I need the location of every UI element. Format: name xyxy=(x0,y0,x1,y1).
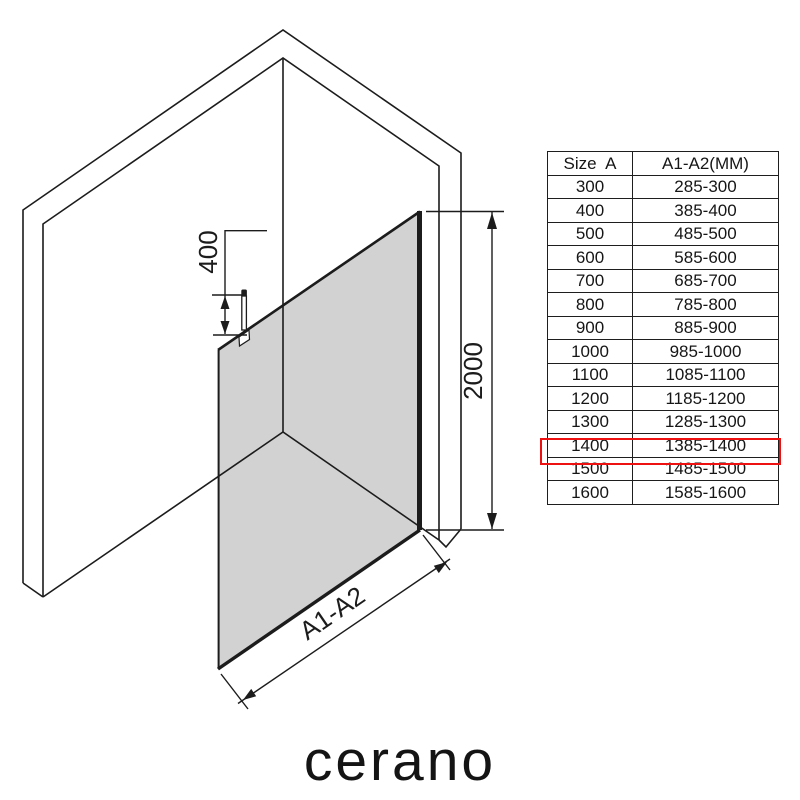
size-cell: 1600 xyxy=(548,481,633,505)
table-row: 16001585-1600 xyxy=(548,481,779,505)
size-cell: 1400 xyxy=(548,434,633,458)
size-table-header-range: A1-A2(MM) xyxy=(633,152,779,176)
table-row: 13001285-1300 xyxy=(548,410,779,434)
range-cell: 485-500 xyxy=(633,222,779,246)
range-cell: 1585-1600 xyxy=(633,481,779,505)
table-row: 900885-900 xyxy=(548,316,779,340)
dimension-support-bar: 400 xyxy=(193,230,267,335)
size-cell: 800 xyxy=(548,293,633,317)
size-cell: 1000 xyxy=(548,340,633,364)
table-row: 1000985-1000 xyxy=(548,340,779,364)
range-cell: 1185-1200 xyxy=(633,387,779,411)
size-cell: 1100 xyxy=(548,363,633,387)
size-table-header-row: Size A A1-A2(MM) xyxy=(548,152,779,176)
table-row: 15001485-1500 xyxy=(548,457,779,481)
size-cell: 300 xyxy=(548,175,633,199)
range-cell: 585-600 xyxy=(633,246,779,270)
range-cell: 1485-1500 xyxy=(633,457,779,481)
table-row: 11001085-1100 xyxy=(548,363,779,387)
table-row: 300285-300 xyxy=(548,175,779,199)
dimension-height: 2000 xyxy=(426,212,504,531)
size-cell: 1200 xyxy=(548,387,633,411)
size-table-header-size: Size A xyxy=(548,152,633,176)
size-cell: 700 xyxy=(548,269,633,293)
range-cell: 385-400 xyxy=(633,199,779,223)
range-cell: 285-300 xyxy=(633,175,779,199)
table-row: 12001185-1200 xyxy=(548,387,779,411)
support-bar xyxy=(239,290,250,347)
size-table-body: 300285-300400385-400500485-500600585-600… xyxy=(548,175,779,504)
range-cell: 1385-1400 xyxy=(633,434,779,458)
size-cell: 1300 xyxy=(548,410,633,434)
size-cell: 600 xyxy=(548,246,633,270)
table-row: 800785-800 xyxy=(548,293,779,317)
range-cell: 985-1000 xyxy=(633,340,779,364)
size-table: Size A A1-A2(MM) 300285-300400385-400500… xyxy=(547,151,779,505)
range-cell: 1285-1300 xyxy=(633,410,779,434)
range-cell: 785-800 xyxy=(633,293,779,317)
table-row: 400385-400 xyxy=(548,199,779,223)
dim-height-label: 2000 xyxy=(458,342,488,400)
range-cell: 1085-1100 xyxy=(633,363,779,387)
size-cell: 500 xyxy=(548,222,633,246)
table-row: 700685-700 xyxy=(548,269,779,293)
table-row: 14001385-1400 xyxy=(548,434,779,458)
dim-support-bar-label: 400 xyxy=(193,230,223,273)
size-cell: 400 xyxy=(548,199,633,223)
range-cell: 685-700 xyxy=(633,269,779,293)
size-cell: 900 xyxy=(548,316,633,340)
range-cell: 885-900 xyxy=(633,316,779,340)
size-cell: 1500 xyxy=(548,457,633,481)
brand-logo: cerano xyxy=(0,728,800,794)
table-row: 600585-600 xyxy=(548,246,779,270)
table-row: 500485-500 xyxy=(548,222,779,246)
